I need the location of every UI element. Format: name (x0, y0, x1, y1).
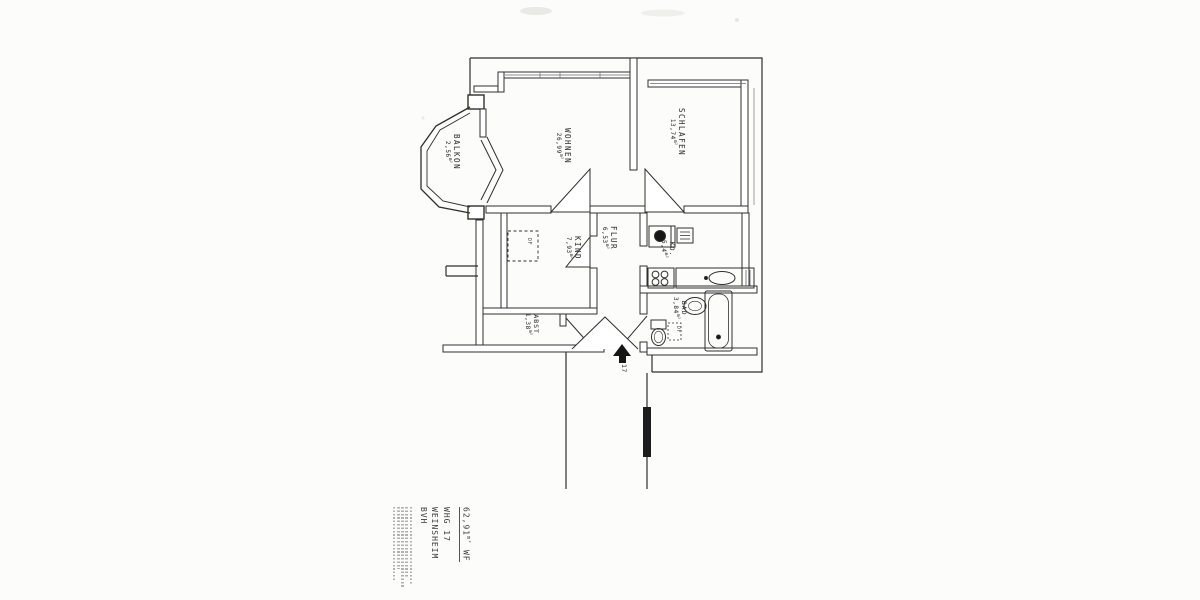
wall-bottom-band-1 (486, 206, 551, 213)
pier-top (468, 95, 484, 109)
roof-window-kind-box (508, 231, 538, 261)
wall-kind-bottom (483, 308, 597, 314)
wall-west-outer (476, 220, 483, 345)
entrance-unit-number: 17 (620, 364, 628, 373)
wall-ko-west-c (640, 342, 647, 352)
wall-wohnen-schlafen (630, 58, 637, 170)
wall-jog (498, 72, 504, 92)
door-wohnen (551, 169, 590, 212)
wall-bottom-band-3 (684, 206, 748, 213)
wall-ko-west-a (640, 213, 647, 246)
room-area: 13,74m² (668, 108, 677, 156)
room-area: 5,4m² (659, 240, 668, 258)
room-area: 26,99m² (554, 128, 563, 164)
walls (443, 58, 757, 355)
room-label-abst: ABST 1,38m² (523, 313, 540, 335)
outer-boundary (470, 58, 762, 372)
door-schlafen (645, 169, 684, 212)
wall-balcony-door-stub (480, 109, 486, 137)
room-area: 1,38m² (523, 313, 532, 335)
balcony-door-swing (481, 137, 503, 203)
room-area: 7,93m² (564, 236, 573, 260)
corridor (566, 352, 651, 489)
room-area: 2,56m² (443, 134, 452, 170)
wall-schlafen-right (741, 80, 748, 213)
pier-bottom (468, 206, 484, 219)
room-label-bad: BAD 3,84m² (671, 297, 688, 319)
corridor-door-solid (643, 407, 651, 457)
door-entrance (572, 317, 638, 349)
room-name: BAD (680, 297, 688, 319)
room-name: WOHNEN (563, 128, 572, 164)
wall-ko-bad (640, 286, 757, 293)
room-name: KO. (668, 240, 676, 258)
wall-kind-east-a (590, 213, 597, 236)
room-name: BALKON (452, 134, 461, 170)
room-label-schlafen: SCHLAFEN 13,74m² (668, 108, 686, 156)
floor-plan-sheet: WOHNEN 26,99m² SCHLAFEN 13,74m² BALKON 2… (0, 0, 1200, 600)
wall-kind-west (501, 213, 507, 312)
neighbor-wall-stub (446, 266, 478, 276)
title-line-city: WEINSHEIM (429, 507, 441, 587)
room-area: 6,53m² (600, 226, 609, 250)
stove-icon (648, 268, 674, 288)
wall-ko-east (742, 213, 749, 290)
room-name: ABST (532, 313, 540, 335)
wall-abst-stub (560, 314, 566, 326)
room-label-balkon: BALKON 2,56m² (443, 134, 461, 170)
title-line-whg: WHG 17 (440, 507, 452, 587)
room-label-flur: FLUR 6,53m² (600, 226, 618, 250)
wall-bottom-band-2 (590, 206, 645, 213)
room-label-ko: KO. 5,4m² (659, 240, 676, 258)
title-block: 62,91m² WF WHG 17 WEINSHEIM BVH (391, 507, 478, 587)
room-label-wohnen: WOHNEN 26,99m² (554, 128, 572, 164)
floor-plan-drawing (0, 0, 1200, 600)
title-line-bvh: BVH (417, 507, 429, 587)
kitchen-basin-icon (709, 272, 735, 285)
room-label-kind: KIND 7,93m² (564, 236, 582, 260)
room-area: 3,84m² (671, 297, 680, 319)
roof-window-label-kind: DF (526, 238, 532, 245)
wc-tank-icon (651, 320, 666, 329)
room-name: SCHLAFEN (677, 108, 686, 156)
stamp-illegible (393, 507, 412, 587)
roof-window-label-bad: DF (675, 326, 681, 333)
wall-kind-east-b (590, 268, 597, 312)
room-name: FLUR (609, 226, 618, 250)
bathroom-fixtures (651, 291, 732, 351)
room-name: KIND (573, 236, 582, 260)
wall-bad-bottom (647, 348, 757, 355)
total-area-line: 62,91m² WF (459, 507, 471, 562)
